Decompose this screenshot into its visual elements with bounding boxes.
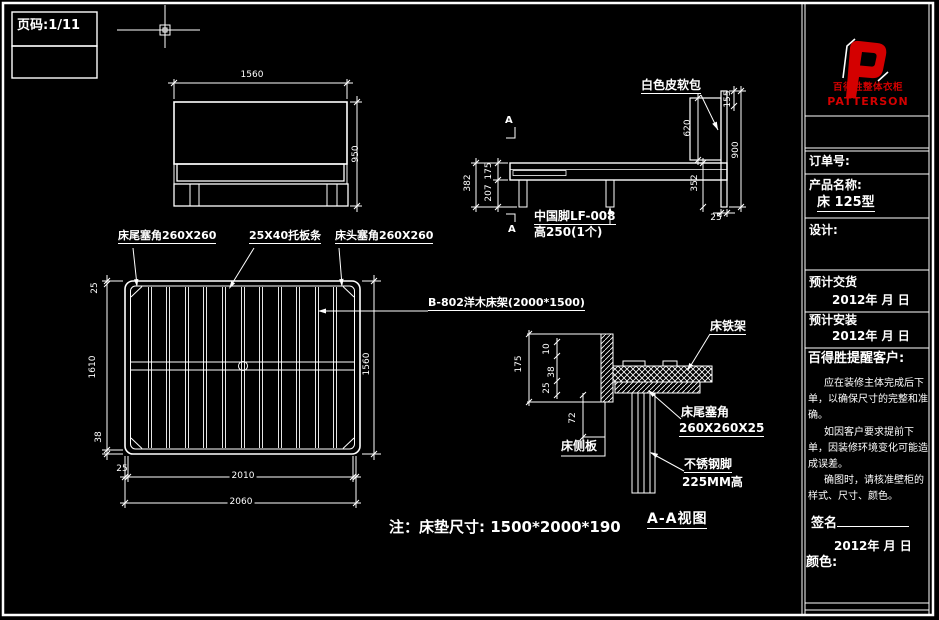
notice-paragraph-3: 确图时，请核准壁柜的样式、尺寸、颜色。: [808, 473, 928, 505]
mattress-note: 注：床垫尺寸: 1500*2000*190: [389, 519, 621, 536]
signature-label: 签名: [811, 516, 837, 531]
plan-dim-1610: 1610: [89, 356, 99, 379]
corner-block-size-label: 260X260X25: [679, 422, 764, 437]
front-height-dim: 950: [352, 145, 362, 162]
signature-row: 签名: [811, 512, 909, 531]
product-name-value: 床 125型: [817, 196, 875, 212]
side-dim-352: 352: [691, 174, 701, 191]
customer-notice-text: 应在装修主体完成后下单，以确保尺寸的完整和准确。 如因客户要求提前下单，因装修环…: [808, 376, 928, 506]
corner-tail-label: 床尾塞角260X260: [118, 230, 216, 244]
front-width-dim: 1560: [241, 71, 264, 81]
plan-dim-38: 38: [95, 431, 105, 442]
customer-notice-title: 百得胜提醒客户:: [808, 352, 904, 366]
page-number-label: 页码:1/11: [17, 19, 80, 33]
iron-frame-label: 床铁架: [710, 320, 746, 335]
section-dim-38: 38: [548, 366, 558, 377]
notice-paragraph-2: 如因客户要求提前下单，因装修环境变化可能造成误差。: [808, 425, 928, 474]
side-dim-25: 25: [710, 214, 721, 224]
plan-dim-left-25: 25: [91, 282, 101, 293]
steel-leg-label: 不锈钢脚: [684, 458, 732, 473]
install-label: 预计安装: [809, 314, 857, 327]
steel-leg-height-label: 225MM高: [682, 476, 743, 489]
signature-date: 2012年 月 日: [834, 540, 912, 553]
section-dim-10: 10: [543, 343, 553, 354]
brand-name-cn: 百得胜整体衣柜: [807, 83, 929, 93]
front-view-geometry: [168, 79, 362, 212]
section-marker-a-bottom: A: [508, 224, 516, 235]
section-title: A-A视图: [647, 512, 707, 529]
section-dim-72: 72: [569, 412, 579, 423]
side-dim-155: 155: [724, 90, 734, 107]
softpack-label: 白色皮软包: [641, 79, 701, 94]
install-date: 2012年 月 日: [832, 330, 910, 343]
signature-line: [837, 512, 909, 527]
order-number-label: 订单号:: [809, 155, 850, 168]
cad-sheet: 页码:1/11 1560 950 白色皮软包 A A 中国脚LF-008 高25…: [0, 0, 939, 620]
china-leg-label: 中国脚LF-008: [534, 210, 616, 225]
section-marker-a-top: A: [505, 115, 513, 126]
delivery-date: 2012年 月 日: [832, 294, 910, 307]
plan-dim-2010: 2010: [230, 472, 257, 482]
color-label: 颜色:: [806, 556, 837, 570]
section-dim-175: 175: [515, 355, 525, 372]
side-board-label: 床侧板: [561, 440, 597, 453]
plan-dim-2060: 2060: [228, 498, 255, 508]
side-dim-382: 382: [464, 174, 474, 191]
china-leg-height-label: 高250(1个): [534, 226, 602, 239]
side-dim-207: 207: [485, 184, 495, 201]
brand-name-en: PATTERSON: [807, 96, 929, 108]
plan-dim-bottom-25: 25: [116, 465, 127, 475]
crosshair-cursor-icon: [117, 5, 200, 48]
notice-paragraph-1: 应在装修主体完成后下单，以确保尺寸的完整和准确。: [808, 376, 928, 425]
delivery-label: 预计交货: [809, 276, 857, 289]
corner-head-label: 床头塞角260X260: [335, 230, 433, 244]
side-view-geometry: [471, 86, 746, 225]
design-label: 设计:: [809, 224, 838, 237]
plan-dim-1560: 1560: [363, 353, 373, 376]
section-dim-25: 25: [543, 382, 553, 393]
side-dim-900: 900: [732, 141, 742, 158]
plan-view-geometry: [102, 248, 428, 508]
product-name-label: 产品名称:: [809, 179, 862, 192]
slat-label: 25X40托板条: [249, 230, 321, 244]
bed-frame-label: B-802洋木床架(2000*1500): [428, 297, 585, 311]
corner-block-label: 床尾塞角: [681, 406, 729, 419]
side-dim-175: 175: [485, 162, 495, 179]
side-dim-620: 620: [684, 119, 694, 136]
